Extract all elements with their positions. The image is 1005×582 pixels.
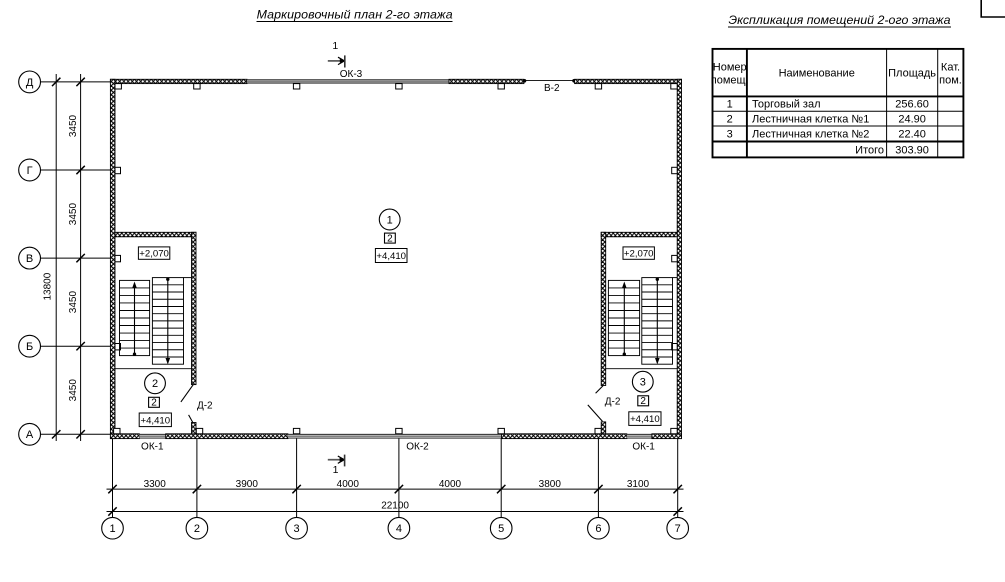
svg-text:2: 2 <box>387 233 393 244</box>
svg-text:1: 1 <box>333 464 339 476</box>
svg-text:256.60: 256.60 <box>895 99 929 111</box>
svg-text:2: 2 <box>151 398 157 409</box>
svg-text:Г: Г <box>27 165 33 177</box>
svg-text:22100: 22100 <box>381 501 409 512</box>
svg-text:3450: 3450 <box>68 379 79 402</box>
svg-text:2: 2 <box>152 378 158 390</box>
svg-text:1: 1 <box>109 523 115 535</box>
svg-text:3: 3 <box>294 523 300 535</box>
svg-text:В: В <box>26 253 33 265</box>
svg-text:303.90: 303.90 <box>895 144 929 156</box>
svg-text:ОК-1: ОК-1 <box>632 441 655 452</box>
svg-text:3800: 3800 <box>539 479 562 490</box>
svg-text:2: 2 <box>194 523 200 535</box>
svg-text:ОК-3: ОК-3 <box>340 69 363 80</box>
svg-text:Маркировочный план 2-го этажа: Маркировочный план 2-го этажа <box>257 8 453 22</box>
svg-text:Наименование: Наименование <box>779 68 855 80</box>
svg-text:Площадь: Площадь <box>888 68 936 80</box>
svg-text:А: А <box>26 429 34 441</box>
svg-text:7: 7 <box>675 523 681 535</box>
svg-text:ОК-1: ОК-1 <box>141 441 164 452</box>
svg-text:Торговый зал: Торговый зал <box>752 99 821 111</box>
svg-text:Б: Б <box>26 341 33 353</box>
svg-text:1: 1 <box>332 40 338 52</box>
svg-text:6: 6 <box>595 523 601 535</box>
svg-text:пом.: пом. <box>939 75 962 87</box>
svg-text:3450: 3450 <box>68 291 79 314</box>
svg-text:ОК-2: ОК-2 <box>406 441 429 452</box>
svg-text:Лестничная клетка №1: Лестничная клетка №1 <box>752 114 869 126</box>
svg-text:1: 1 <box>387 214 393 226</box>
svg-text:4000: 4000 <box>439 479 462 490</box>
svg-text:3: 3 <box>727 129 733 141</box>
svg-text:24.90: 24.90 <box>898 114 926 126</box>
svg-text:Д-2: Д-2 <box>197 401 213 412</box>
svg-text:4000: 4000 <box>337 479 360 490</box>
svg-text:Д: Д <box>26 77 34 89</box>
svg-text:Д-2: Д-2 <box>605 397 621 408</box>
svg-text:+4,410: +4,410 <box>140 415 170 426</box>
svg-text:22.40: 22.40 <box>898 129 926 141</box>
svg-text:5: 5 <box>498 523 504 535</box>
svg-text:+2,070: +2,070 <box>139 248 169 259</box>
svg-text:3: 3 <box>640 377 646 389</box>
svg-text:3450: 3450 <box>68 203 79 226</box>
svg-text:Итого: Итого <box>855 144 884 156</box>
svg-text:3900: 3900 <box>236 479 259 490</box>
svg-text:3300: 3300 <box>144 479 167 490</box>
svg-text:В-2: В-2 <box>544 83 560 94</box>
svg-text:3450: 3450 <box>68 114 79 137</box>
svg-text:+4,410: +4,410 <box>630 414 660 425</box>
svg-text:Номер: Номер <box>713 61 747 73</box>
svg-text:1: 1 <box>727 99 733 111</box>
svg-text:Экспликация помещений 2-ого эт: Экспликация помещений 2-ого этажа <box>729 13 951 27</box>
svg-text:4: 4 <box>396 523 402 535</box>
svg-text:Лестничная клетка №2: Лестничная клетка №2 <box>752 129 869 141</box>
svg-text:Кат.: Кат. <box>941 61 960 73</box>
svg-text:2: 2 <box>640 396 646 407</box>
svg-text:3100: 3100 <box>627 479 650 490</box>
svg-text:помещ.: помещ. <box>711 75 749 87</box>
svg-text:13800: 13800 <box>42 272 53 300</box>
svg-text:+2,070: +2,070 <box>624 248 654 259</box>
svg-text:2: 2 <box>727 114 733 126</box>
svg-text:+4,410: +4,410 <box>376 251 406 262</box>
